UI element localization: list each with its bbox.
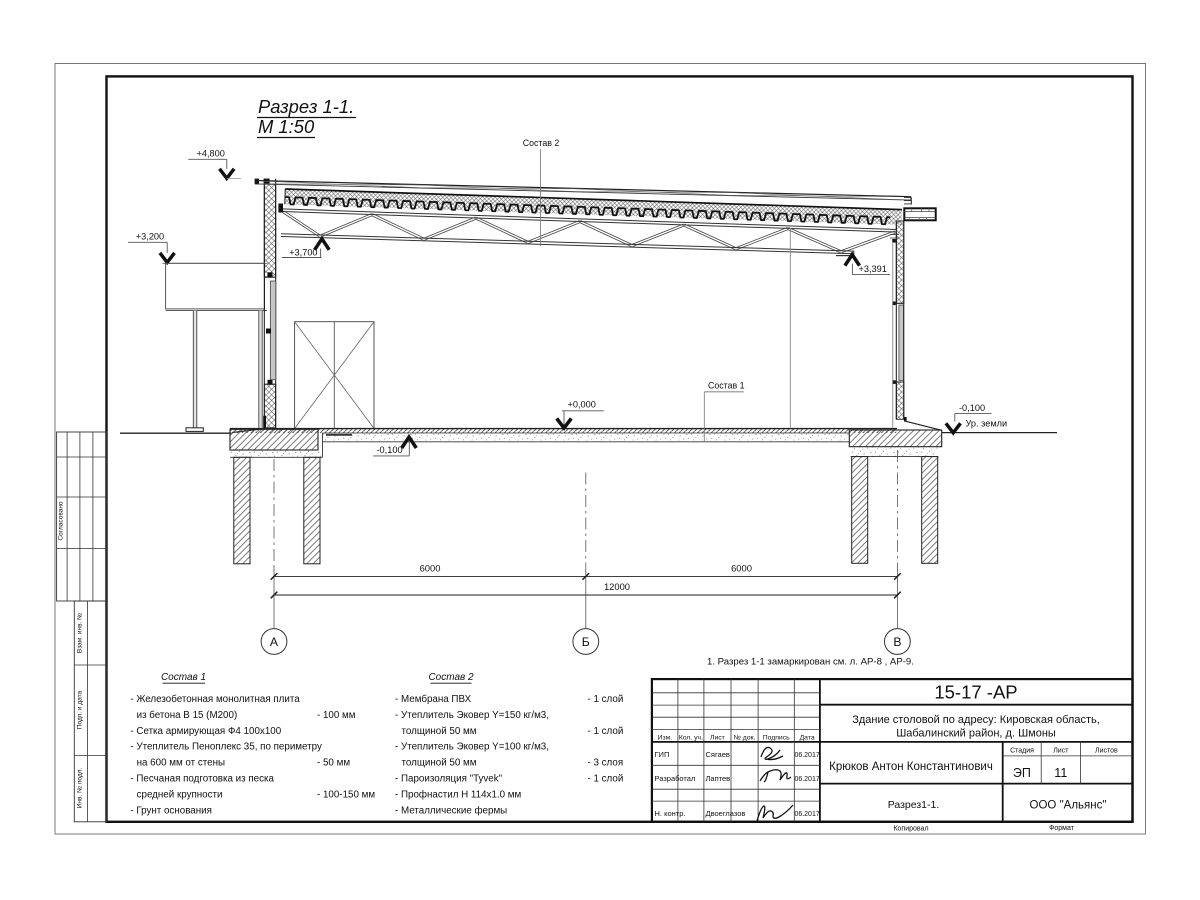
svg-text:- 1 слой: - 1 слой [588, 694, 624, 705]
svg-text:- Железобетонная монолитная п: - Железобетонная монолитная плита [130, 694, 300, 705]
svg-text:Подпись: Подпись [763, 735, 790, 742]
svg-text:Изм.: Изм. [658, 735, 673, 742]
svg-text:Состав 2: Состав 2 [428, 672, 474, 683]
svg-text:+0,000: +0,000 [568, 400, 596, 410]
svg-text:№ док.: № док. [734, 735, 756, 742]
svg-text:- Сетка армирующая Ф4 100х100: - Сетка армирующая Ф4 100х100 [130, 726, 281, 737]
svg-text:Шабалинский район, д. Шмоны: Шабалинский район, д. Шмоны [896, 728, 1056, 740]
svg-text:Согласовано: Согласовано [58, 501, 65, 540]
svg-text:В: В [893, 635, 901, 649]
svg-text:+3,200: +3,200 [136, 231, 164, 241]
svg-text:толщиной 50 мм: толщиной 50 мм [402, 758, 477, 769]
svg-text:Кол. уч.: Кол. уч. [679, 735, 703, 742]
svg-text:Разрез1-1.: Разрез1-1. [888, 799, 940, 811]
svg-text:Подп. и дата: Подп. и дата [77, 690, 84, 729]
svg-text:Лист: Лист [1053, 747, 1069, 754]
svg-text:+3,391: +3,391 [859, 264, 887, 274]
svg-text:11: 11 [1054, 766, 1067, 780]
svg-text:Стадия: Стадия [1010, 747, 1034, 754]
svg-text:- Пароизоляция "Tyvek": - Пароизоляция "Tyvek" [395, 774, 503, 785]
svg-text:-0,100: -0,100 [959, 403, 985, 413]
svg-text:из бетона В 15 (М200): из бетона В 15 (М200) [137, 710, 238, 721]
svg-text:- 100-150 мм: - 100-150 мм [317, 790, 375, 801]
svg-text:- 50 мм: - 50 мм [317, 758, 350, 769]
svg-text:- 100 мм: - 100 мм [317, 710, 356, 721]
svg-text:Лаптев: Лаптев [706, 774, 731, 783]
svg-text:6000: 6000 [420, 563, 441, 574]
svg-text:средней крупности: средней крупности [137, 790, 223, 801]
svg-text:Листов: Листов [1095, 747, 1118, 754]
svg-text:6000: 6000 [731, 563, 752, 574]
svg-text:Сягаев: Сягаев [706, 750, 730, 759]
svg-text:Состав 1: Состав 1 [708, 381, 745, 391]
svg-text:12000: 12000 [604, 581, 630, 592]
svg-text:-0,100: -0,100 [377, 445, 403, 455]
svg-text:Лист: Лист [710, 735, 725, 742]
svg-text:15-17 -АР: 15-17 -АР [934, 682, 1017, 703]
svg-text:на 600 мм от стены: на 600 мм от стены [137, 758, 225, 769]
svg-text:06.2017: 06.2017 [794, 752, 819, 759]
svg-text:- Мембрана ПВХ: - Мембрана ПВХ [395, 694, 472, 705]
svg-text:Здание столовой по адресу: Кир: Здание столовой по адресу: Кировская обл… [852, 714, 1100, 726]
svg-text:Взам. инв. №: Взам. инв. № [77, 613, 84, 653]
svg-text:ЭП: ЭП [1013, 766, 1031, 780]
svg-text:Разрез 1-1.: Разрез 1-1. [258, 96, 354, 117]
svg-text:Ур. земли: Ур. земли [966, 419, 1008, 429]
svg-text:Формат: Формат [1049, 825, 1075, 832]
svg-text:+4,800: +4,800 [197, 149, 225, 159]
svg-text:Крюков Антон Константинович: Крюков Антон Константинович [829, 761, 993, 773]
svg-text:Двоеглазов: Двоеглазов [706, 809, 746, 818]
svg-text:- Профнастил Н 114х1.0 мм: - Профнастил Н 114х1.0 мм [395, 790, 522, 801]
svg-text:- Утеплитель Пеноплекс 35, по: - Утеплитель Пеноплекс 35, по периметру [130, 742, 322, 753]
svg-text:Состав 2: Состав 2 [523, 138, 560, 148]
svg-text:- Утеплитель Эковер Y=150 кг/м: - Утеплитель Эковер Y=150 кг/м3, [395, 710, 549, 721]
svg-text:толщиной 50 мм: толщиной 50 мм [402, 726, 477, 737]
svg-text:06.2017: 06.2017 [794, 776, 819, 783]
svg-text:Дата: Дата [800, 735, 815, 742]
svg-text:Б: Б [582, 635, 590, 649]
svg-text:06.2017: 06.2017 [794, 811, 819, 818]
svg-text:- Песчаная подготовка из песка: - Песчаная подготовка из песка [130, 774, 274, 785]
svg-text:Копировал: Копировал [893, 825, 928, 832]
svg-text:- 1 слой: - 1 слой [588, 774, 624, 785]
svg-text:1. Разрез 1-1 замаркирован см.: 1. Разрез 1-1 замаркирован см. л. АР-8 ,… [707, 657, 914, 668]
svg-text:Разработал: Разработал [655, 774, 696, 783]
svg-text:ООО "Альянс": ООО "Альянс" [1030, 800, 1107, 812]
svg-text:Состав 1: Состав 1 [161, 672, 206, 683]
svg-text:Инв. № подл.: Инв. № подл. [77, 768, 84, 809]
svg-text:- Металлические фермы: - Металлические фермы [395, 805, 507, 816]
svg-text:- Утеплитель Эковер Y=100 кг/м: - Утеплитель Эковер Y=100 кг/м3, [395, 742, 549, 753]
svg-text:- Грунт основания: - Грунт основания [130, 805, 212, 816]
svg-text:М 1:50: М 1:50 [258, 116, 315, 137]
svg-text:А: А [270, 635, 279, 649]
svg-text:ГИП: ГИП [655, 750, 670, 759]
svg-text:- 1 слой: - 1 слой [588, 726, 624, 737]
svg-text:Н. контр.: Н. контр. [655, 809, 686, 818]
svg-text:- 3 слоя: - 3 слоя [588, 758, 624, 769]
